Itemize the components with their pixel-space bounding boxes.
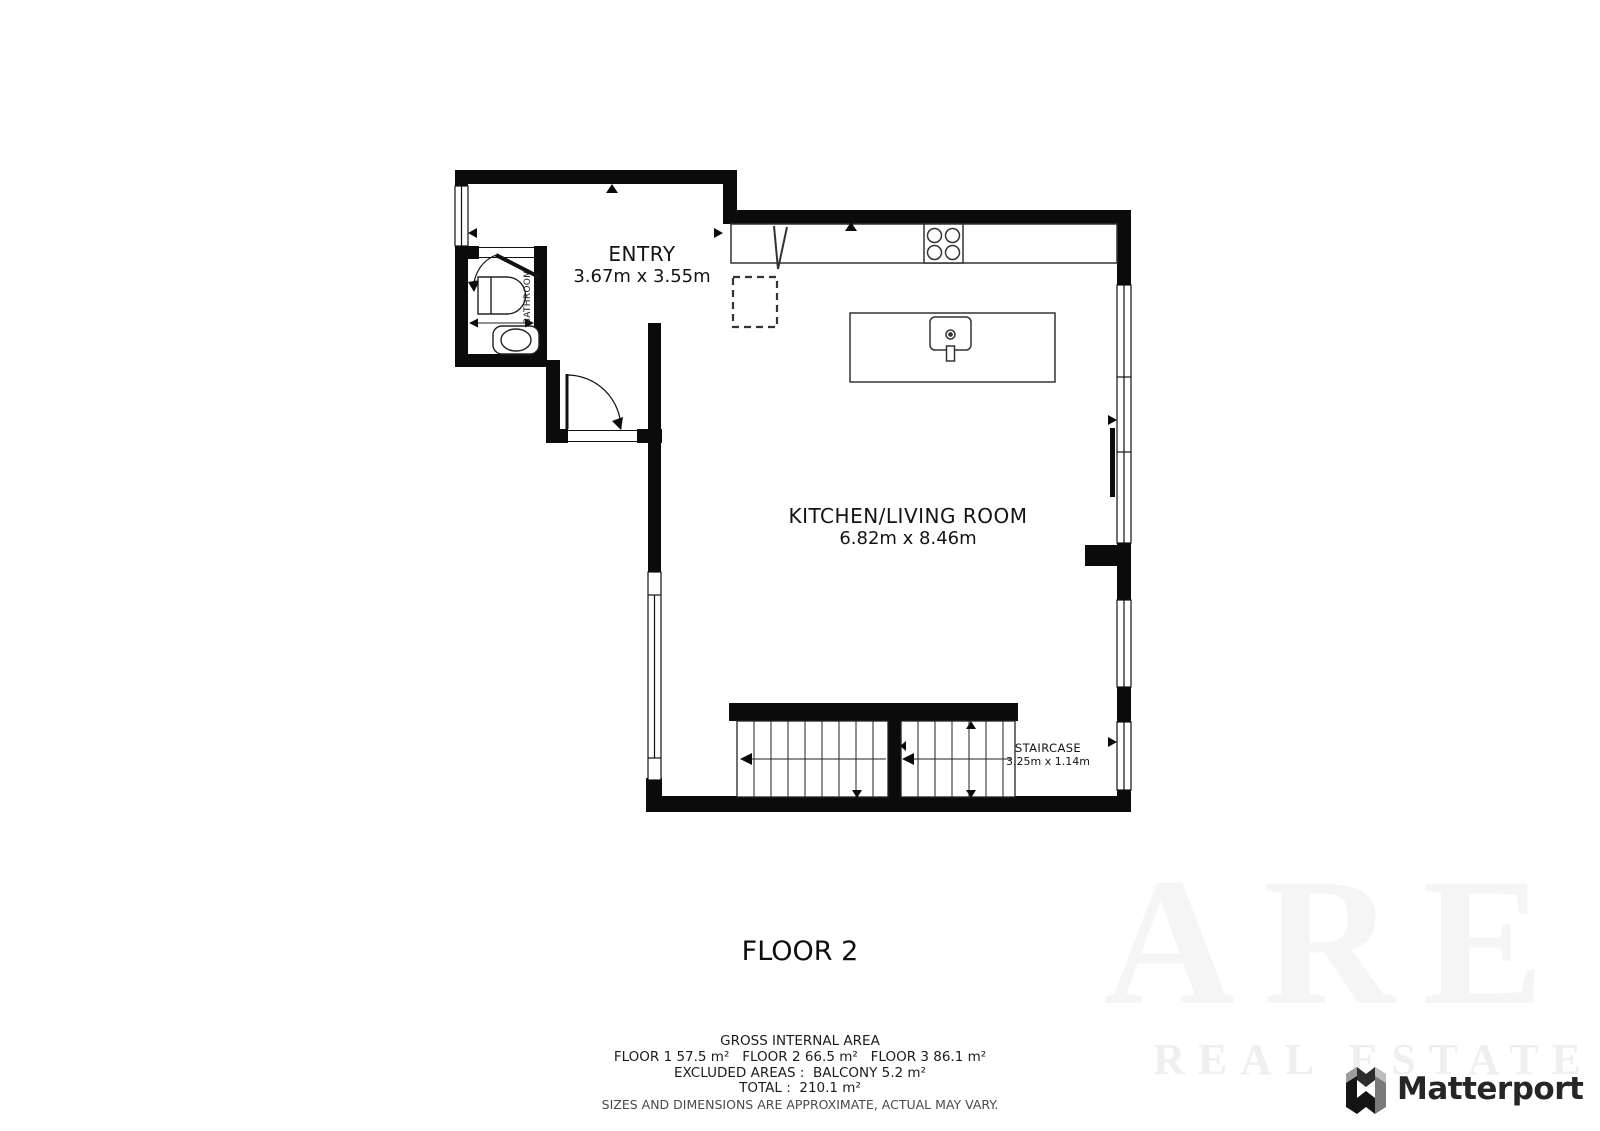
stove-icon bbox=[924, 224, 963, 263]
marker-right-wall-lower bbox=[1108, 737, 1117, 747]
room-dims-staircase: 3.25m x 1.14m bbox=[988, 755, 1108, 768]
bathroom-sink-icon bbox=[478, 277, 526, 314]
wall-staircase-top bbox=[729, 703, 1018, 721]
wall-right-stub bbox=[1085, 545, 1118, 566]
matterport-wordmark: Matterport bbox=[1397, 1071, 1583, 1107]
marker-right-wall-upper bbox=[1108, 415, 1117, 425]
wall-bottom bbox=[646, 796, 1131, 812]
window-right-a bbox=[1117, 285, 1131, 543]
gross-internal-area-label: GROSS INTERNAL AREA bbox=[0, 1034, 1600, 1050]
marker-entry-left bbox=[468, 228, 477, 238]
entry-door bbox=[567, 374, 623, 430]
marker-connector bbox=[714, 228, 723, 238]
wall-entry-top bbox=[455, 170, 737, 184]
room-name-bathroom: BATHROOM bbox=[523, 257, 533, 337]
matterport-logo: Matterport bbox=[1344, 1064, 1583, 1114]
marker-entry-top bbox=[606, 184, 618, 193]
floorplan-page: ARE REAL ESTATE bbox=[0, 0, 1600, 1131]
room-name-entry: ENTRY bbox=[542, 242, 742, 266]
wall-bath-bottom bbox=[455, 354, 547, 367]
wall-bath-top-left bbox=[455, 246, 479, 259]
staircase bbox=[737, 721, 1015, 798]
window-right-c bbox=[1117, 722, 1131, 790]
room-dims-entry: 3.67m x 3.55m bbox=[542, 266, 742, 287]
floor-title: FLOOR 2 bbox=[0, 936, 1600, 967]
wall-staircase-divider bbox=[888, 721, 901, 798]
room-label-kitchen-living: KITCHEN/LIVING ROOM 6.82m x 8.46m bbox=[758, 504, 1058, 549]
room-name-staircase: STAIRCASE bbox=[988, 741, 1108, 755]
kitchen-fixtures bbox=[731, 224, 1117, 497]
window-entry-left bbox=[455, 186, 468, 246]
room-label-entry: ENTRY 3.67m x 3.55m bbox=[542, 242, 742, 287]
room-name-kitchen-living: KITCHEN/LIVING ROOM bbox=[758, 504, 1058, 528]
wall-tv-icon bbox=[1110, 428, 1115, 497]
wall-entry-bottom-a bbox=[546, 429, 568, 443]
window-right-b bbox=[1117, 600, 1131, 687]
window-living-left bbox=[648, 572, 661, 780]
matterport-m-icon bbox=[1344, 1064, 1388, 1114]
room-dims-kitchen-living: 6.82m x 8.46m bbox=[758, 528, 1058, 549]
room-dims-bathroom: 1.10m x 1.51m bbox=[533, 257, 542, 337]
room-label-staircase: STAIRCASE 3.25m x 1.14m bbox=[988, 741, 1108, 768]
wall-kitchen-top bbox=[723, 210, 1131, 224]
room-label-bathroom: BATHROOM 1.10m x 1.51m bbox=[523, 257, 549, 337]
entry-door-opening bbox=[568, 429, 637, 443]
